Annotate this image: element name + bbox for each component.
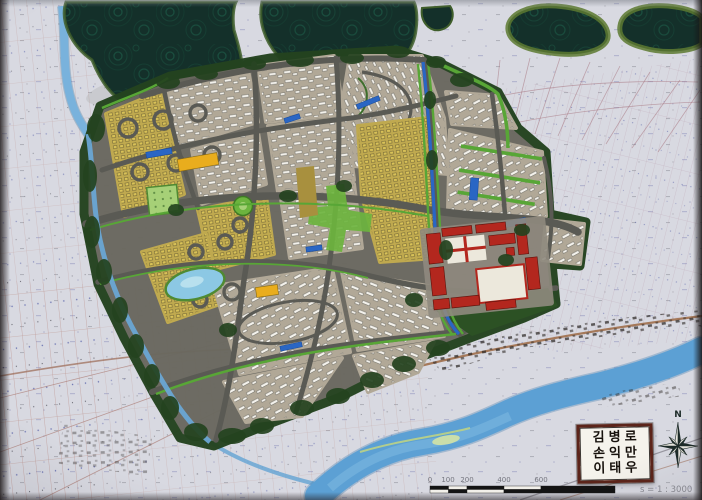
- red-building-complex: [420, 216, 555, 319]
- scale-ratio-text: s = 1 : 3000: [640, 485, 692, 495]
- forest-patch-northeast-1: [508, 6, 608, 55]
- scale-label: 400: [497, 476, 510, 484]
- courtyard: [476, 264, 527, 303]
- scale-label: 100: [441, 476, 454, 484]
- north-label: N: [674, 410, 682, 420]
- master-plan-map-photo: N 0 100 200 400 600 1000 s = 1 : 3000: [0, 0, 702, 500]
- forest-patch-northeast-2: [620, 6, 702, 52]
- author-name: 손익만: [589, 445, 641, 462]
- authors-box: 김병로 손익만 이태우: [576, 423, 653, 484]
- scale-bar-cells: [430, 486, 615, 493]
- author-name: 이태우: [589, 461, 641, 478]
- round-park-center: [239, 202, 247, 210]
- scale-label: 600: [534, 476, 547, 484]
- scale-label: 200: [460, 476, 473, 484]
- scale-label: 0: [428, 476, 432, 484]
- author-name: 김병로: [589, 429, 641, 446]
